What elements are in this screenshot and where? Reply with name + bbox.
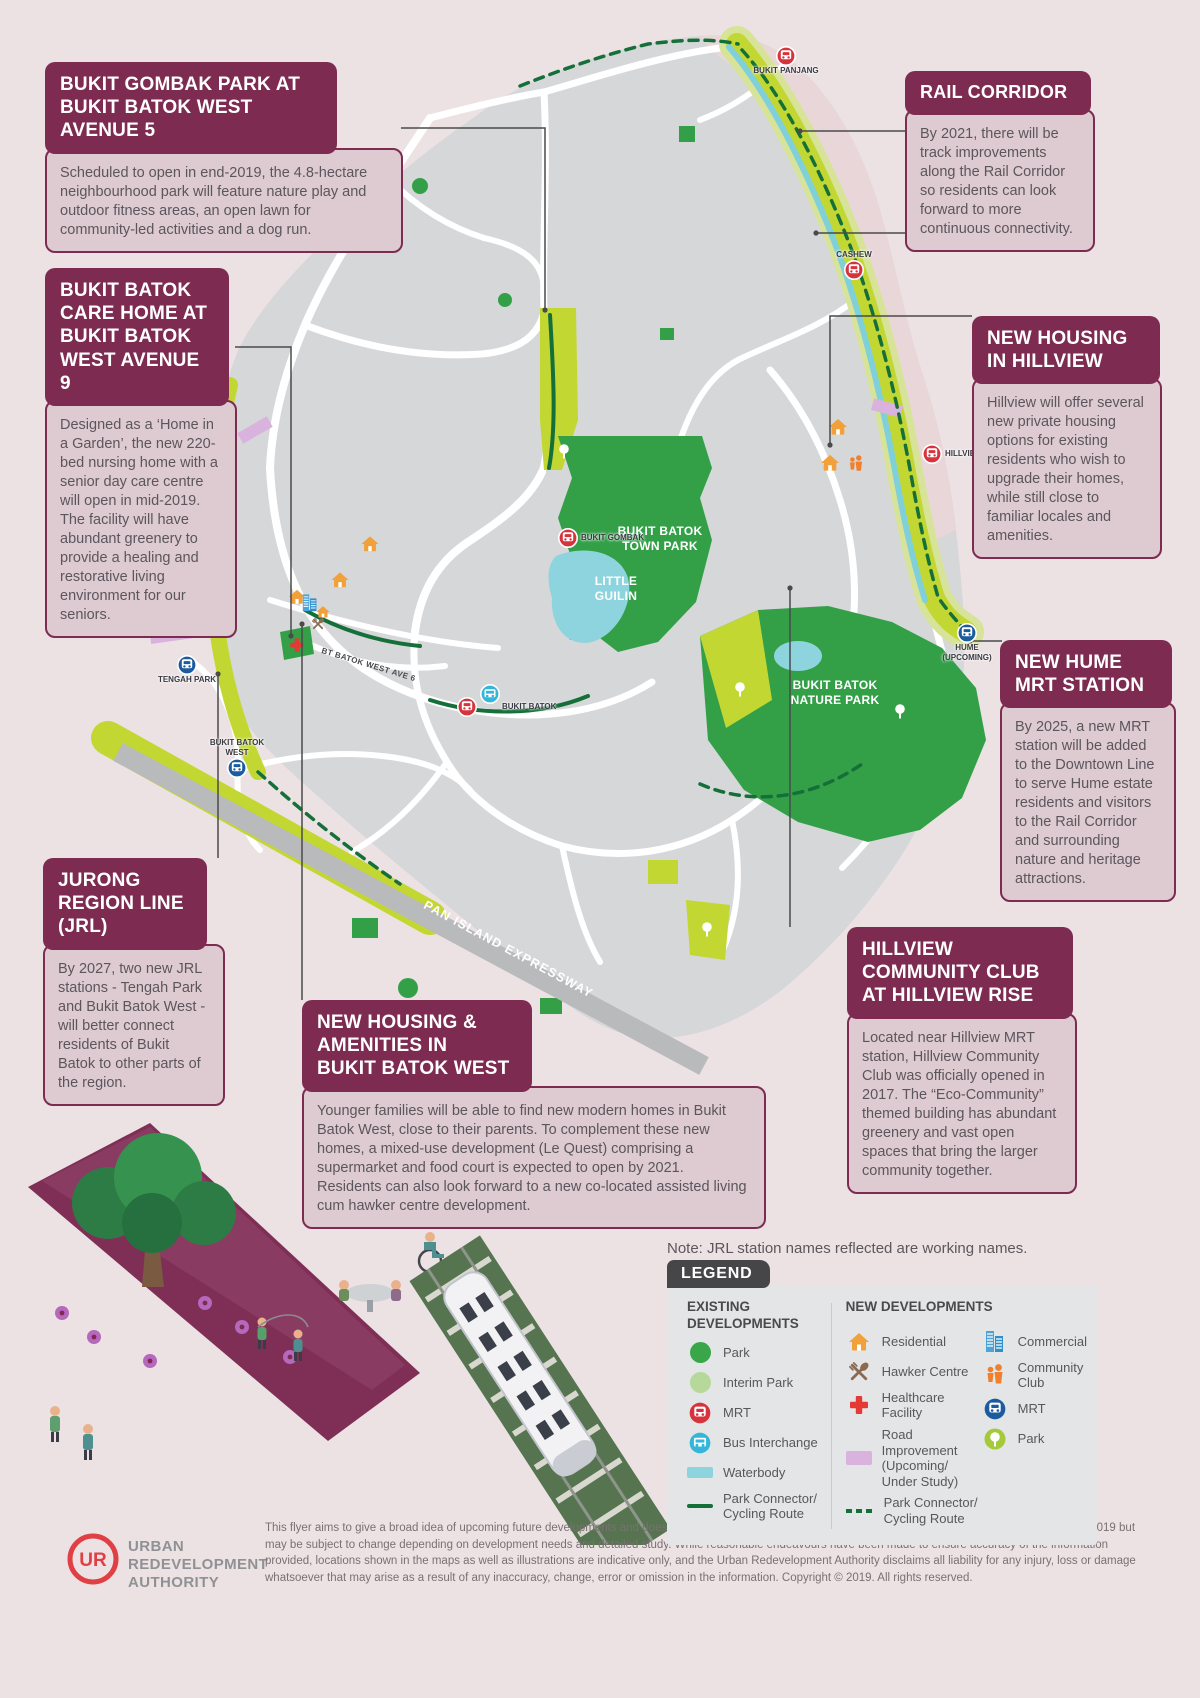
legend-item-mrt-existing: MRT — [687, 1401, 825, 1425]
tree-circle-icon — [982, 1428, 1008, 1450]
callout-title: NEW HOUSING IN HILLVIEW — [972, 316, 1160, 384]
legend-item-park: Park — [687, 1341, 825, 1365]
station-cashew: CASHEW — [794, 250, 914, 280]
callout-body: By 2021, there will be track improvement… — [905, 109, 1095, 252]
flyer: BUKIT BATOK TOWN PARK LITTLE GUILIN BUKI… — [0, 0, 1200, 1698]
station-label: BUKIT BATOK — [502, 702, 556, 712]
dashed-green-line-icon — [846, 1509, 874, 1513]
legend-divider — [831, 1303, 832, 1529]
bus-interchange-icon — [480, 684, 500, 704]
mrt-station-icon — [227, 758, 247, 778]
station-label: TENGAH PARK — [158, 675, 216, 685]
callout-body: Scheduled to open in end-2019, the 4.8-h… — [45, 148, 403, 253]
mrt-station-icon — [957, 623, 977, 643]
legend-item-hawker-centre: Hawker Centre — [846, 1360, 978, 1384]
callout-body: Younger families will be able to find ne… — [302, 1086, 766, 1229]
callout-body: Designed as a ‘Home in a Garden’, the ne… — [45, 400, 237, 638]
solid-green-line-icon — [687, 1504, 713, 1508]
station-bukit-panjang: BUKIT PANJANG — [726, 46, 846, 76]
callout-jurong-region-line: JURONG REGION LINE (JRL) By 2027, two ne… — [43, 858, 225, 1106]
house-icon — [846, 1331, 872, 1353]
mrt-station-icon — [922, 444, 942, 464]
buildings-icon — [982, 1330, 1008, 1354]
illustration-train — [409, 1235, 670, 1545]
mrt-station-icon — [776, 46, 796, 66]
callout-title: JURONG REGION LINE (JRL) — [43, 858, 207, 950]
station-label: HUME (UPCOMING) — [942, 643, 991, 663]
legend-existing-section: EXISTING DEVELOPMENTS Park Interim Park … — [687, 1299, 825, 1533]
station-label: BUKIT GOMBAK — [581, 533, 644, 543]
callout-bukit-batok-care-home: BUKIT BATOK CARE HOME AT BUKIT BATOK WES… — [45, 268, 237, 638]
map-label-little-guilin: LITTLE GUILIN — [566, 574, 666, 604]
callout-title: NEW HOUSING & AMENITIES IN BUKIT BATOK W… — [302, 1000, 532, 1092]
legend-item-interim-park: Interim Park — [687, 1371, 825, 1395]
station-tengah-park: TENGAH PARK — [127, 655, 247, 685]
callout-new-hume-mrt: NEW HUME MRT STATION By 2025, a new MRT … — [1000, 640, 1176, 902]
nature-park-pond — [774, 641, 822, 671]
legend-item-bus-interchange: Bus Interchange — [687, 1431, 825, 1455]
legend-item-healthcare: Healthcare Facility — [846, 1390, 978, 1421]
legend-existing-heading: EXISTING DEVELOPMENTS — [687, 1299, 825, 1333]
station-label: CASHEW — [836, 250, 872, 260]
legend-item-park-connector-new: Park Connector/ Cycling Route — [846, 1495, 978, 1526]
mrt-station-icon — [844, 260, 864, 280]
station-label: BUKIT BATOK WEST — [210, 738, 264, 758]
callout-title: NEW HUME MRT STATION — [1000, 640, 1172, 708]
legend-item-road-improvement: Road Improvement (Upcoming/ Under Study) — [846, 1427, 978, 1489]
ura-monogram: UR — [79, 1550, 107, 1571]
legend-badge: LEGEND — [667, 1260, 770, 1288]
callout-title: RAIL CORRIDOR — [905, 71, 1091, 115]
station-label: BUKIT PANJANG — [753, 66, 818, 76]
callout-body: Hillview will offer several new private … — [972, 378, 1162, 559]
callout-title: HILLVIEW COMMUNITY CLUB AT HILLVIEW RISE — [847, 927, 1073, 1019]
ura-logo: UR URBAN REDEVELOPMENT AUTHORITY — [66, 1532, 268, 1592]
callout-title: BUKIT BATOK CARE HOME AT BUKIT BATOK WES… — [45, 268, 229, 406]
callout-hillview-community-club: HILLVIEW COMMUNITY CLUB AT HILLVIEW RISE… — [847, 927, 1077, 1194]
legend-item-waterbody: Waterbody — [687, 1461, 825, 1485]
bus-interchange-icon — [687, 1432, 713, 1454]
mrt-station-icon — [177, 655, 197, 675]
callout-bukit-gombak-park: BUKIT GOMBAK PARK AT BUKIT BATOK WEST AV… — [45, 62, 403, 253]
mrt-red-icon — [687, 1402, 713, 1424]
interim-park-circle-icon — [687, 1372, 713, 1393]
station-bukit-batok-west: BUKIT BATOK WEST — [177, 738, 297, 778]
legend-item-community-club: Community Club — [982, 1360, 1087, 1391]
legend-item-park-new: Park — [982, 1427, 1087, 1451]
mrt-station-icon — [558, 528, 578, 548]
station-bukit-batok: BUKIT BATOK — [455, 682, 605, 724]
legend-item-park-connector: Park Connector/ Cycling Route — [687, 1491, 825, 1522]
mrt-station-icon — [457, 697, 477, 717]
callout-rail-corridor: RAIL CORRIDOR By 2021, there will be tra… — [905, 71, 1095, 252]
callout-body: By 2027, two new JRL stations - Tengah P… — [43, 944, 225, 1106]
people-icon — [982, 1364, 1008, 1386]
legend-item-commercial: Commercial — [982, 1330, 1087, 1354]
mrt-blue-icon — [982, 1398, 1008, 1420]
park-circle-icon — [687, 1342, 713, 1363]
utensils-icon — [846, 1361, 872, 1383]
legend-item-mrt-new: MRT — [982, 1397, 1087, 1421]
waterbody-swatch — [687, 1467, 713, 1478]
legend-new-heading: NEW DEVELOPMENTS — [846, 1299, 1087, 1316]
legend-item-residential: Residential — [846, 1330, 978, 1354]
callout-body: Located near Hillview MRT station, Hillv… — [847, 1013, 1077, 1194]
map-label-nature-park: BUKIT BATOK NATURE PARK — [770, 678, 900, 708]
station-bukit-gombak: BUKIT GOMBAK — [558, 528, 644, 548]
legend-new-section: NEW DEVELOPMENTS Residential Hawker Cent… — [846, 1299, 1087, 1533]
callout-title: BUKIT GOMBAK PARK AT BUKIT BATOK WEST AV… — [45, 62, 337, 154]
callout-new-housing-bukit-batok-west: NEW HOUSING & AMENITIES IN BUKIT BATOK W… — [302, 1000, 766, 1229]
legend-panel: EXISTING DEVELOPMENTS Park Interim Park … — [667, 1285, 1097, 1545]
jrl-note: Note: JRL station names reflected are wo… — [667, 1240, 1147, 1257]
ura-wordmark: URBAN REDEVELOPMENT AUTHORITY — [128, 1538, 268, 1592]
red-cross-icon — [846, 1394, 872, 1416]
callout-new-housing-hillview: NEW HOUSING IN HILLVIEW Hillview will of… — [972, 316, 1162, 559]
callout-body: By 2025, a new MRT station will be added… — [1000, 702, 1176, 902]
purple-swatch — [846, 1451, 872, 1465]
ura-logo-mark: UR — [66, 1532, 120, 1586]
